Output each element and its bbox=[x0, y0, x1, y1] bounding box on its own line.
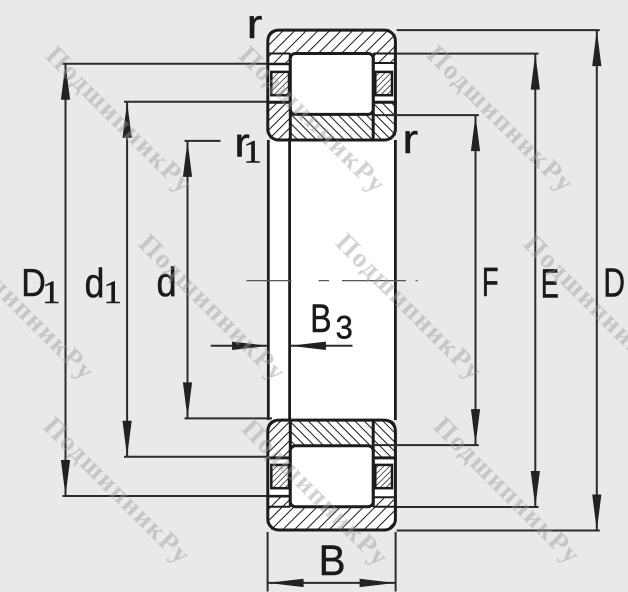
svg-text:3: 3 bbox=[336, 309, 353, 346]
svg-text:B: B bbox=[310, 296, 331, 341]
svg-text:1: 1 bbox=[103, 274, 122, 311]
svg-text:r: r bbox=[403, 117, 419, 162]
svg-text:1: 1 bbox=[42, 274, 61, 311]
svg-text:1: 1 bbox=[243, 133, 262, 170]
svg-text:B: B bbox=[319, 537, 346, 584]
svg-text:F: F bbox=[482, 261, 499, 306]
svg-text:d: d bbox=[85, 260, 105, 306]
